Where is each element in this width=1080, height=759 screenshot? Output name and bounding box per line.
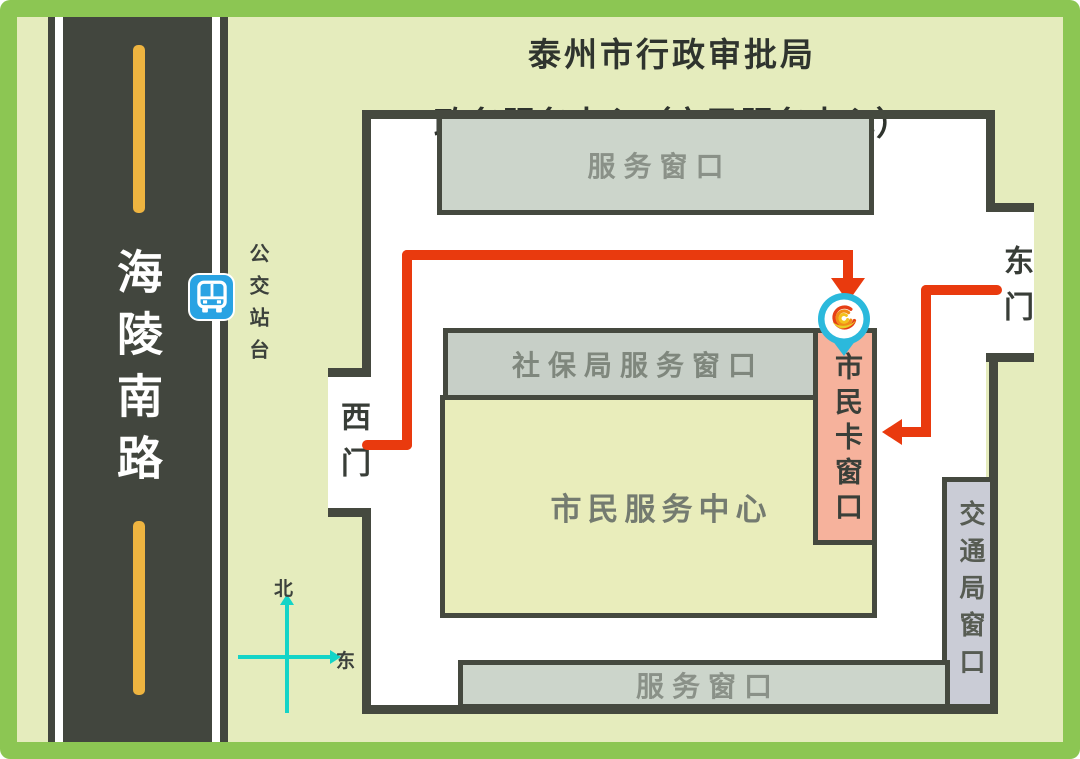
wall-left-upper: [362, 110, 371, 369]
bus-stop-icon: [188, 273, 235, 321]
citizen-service-center-label: 市民服务中心: [545, 484, 773, 529]
citizen-service-center-hall: 市民服务中心: [440, 395, 877, 618]
route-east-segment-down: [921, 285, 931, 432]
road-name-label: 海陵南路: [112, 248, 160, 496]
destination-pin-icon: [816, 292, 872, 358]
compass-horizontal-line: [238, 655, 332, 659]
east-gate-cap-top: [986, 203, 1034, 212]
east-gate-cap-bottom: [986, 353, 1034, 362]
compass-north-label: 北: [274, 574, 293, 601]
shebao-service-window-bar: 社保局服务窗口: [443, 328, 825, 400]
compass-east-label: 东: [336, 646, 355, 673]
route-west-segment-across: [402, 250, 853, 260]
traffic-bureau-window-label: 交通局窗口: [956, 500, 984, 685]
route-west-segment-up: [402, 250, 412, 450]
bottom-service-window-label: 服务窗口: [628, 665, 780, 705]
west-gate-cap-bottom: [328, 508, 371, 517]
road-center-dash-top: [133, 45, 145, 213]
route-east-segment-left: [898, 427, 931, 437]
wall-right-upper: [986, 110, 995, 212]
map-canvas: 海陵南路 公交站台 北 东 泰州市行政审批局 政务服务中心（市民服务中心）: [0, 0, 1080, 759]
route-east-segment-start: [921, 285, 1002, 295]
citizen-card-window-label: 市民卡窗口: [831, 352, 861, 527]
shebao-service-window-label: 社保局服务窗口: [504, 344, 764, 384]
west-gate-cap-top: [328, 368, 371, 377]
bus-stop-label: 公交站台: [245, 243, 267, 371]
top-service-window-bar: 服务窗口: [437, 110, 874, 215]
road-edge-line-right: [212, 17, 220, 742]
wall-left-lower: [362, 508, 371, 714]
bottom-service-window-bar: 服务窗口: [458, 660, 950, 713]
road-center-dash-bottom: [133, 521, 145, 695]
bus-glyph: [194, 278, 230, 316]
route-east-arrowhead-icon: [882, 419, 902, 445]
top-service-window-label: 服务窗口: [579, 145, 731, 185]
road-edge-line-left: [55, 17, 63, 742]
title-line-1: 泰州市行政审批局: [377, 28, 967, 76]
east-gate-label: 东门: [998, 245, 1030, 337]
